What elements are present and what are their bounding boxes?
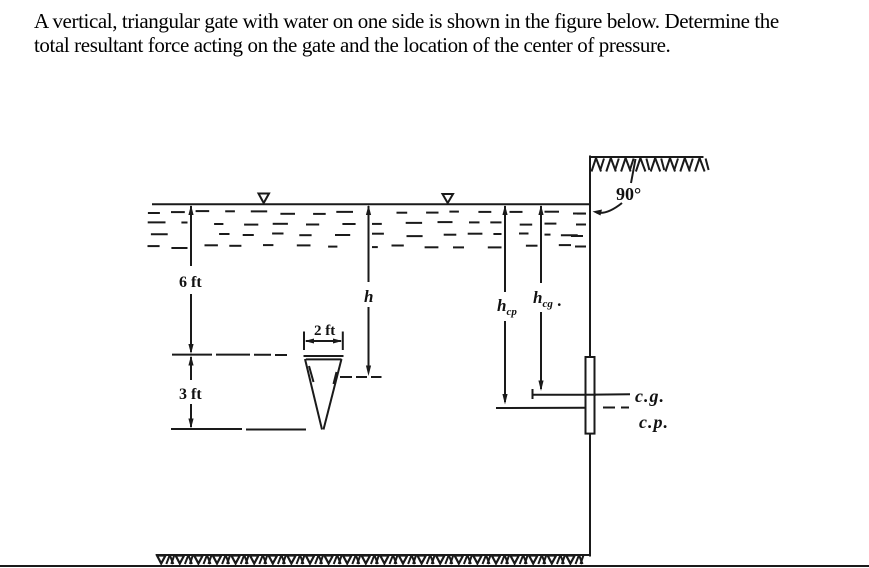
svg-text:h: h (364, 287, 373, 306)
svg-text:hcp: hcp (497, 296, 517, 318)
svg-text:2 ft: 2 ft (314, 323, 335, 339)
svg-text:hcg .: hcg . (533, 288, 561, 310)
svg-text:3 ft: 3 ft (179, 386, 202, 403)
svg-text:c.p.: c.p. (639, 412, 669, 432)
svg-text:90°: 90° (616, 184, 641, 204)
svg-text:c.g.: c.g. (635, 386, 665, 406)
svg-text:6 ft: 6 ft (179, 274, 202, 291)
